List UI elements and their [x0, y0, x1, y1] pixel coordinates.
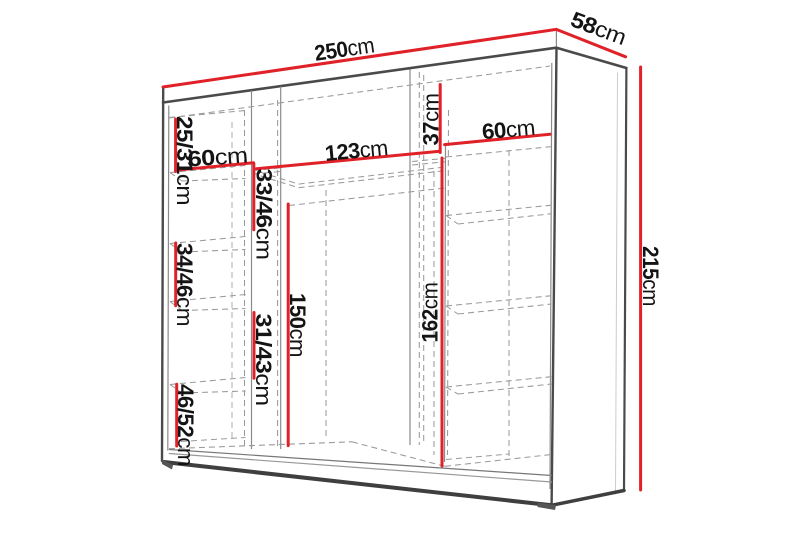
svg-text:46/52cm: 46/52cm: [173, 384, 198, 466]
svg-text:37cm: 37cm: [419, 94, 444, 146]
svg-text:162cm: 162cm: [418, 283, 443, 343]
svg-text:215cm: 215cm: [638, 246, 663, 306]
svg-text:60cm: 60cm: [187, 142, 249, 171]
svg-text:60cm: 60cm: [481, 115, 536, 145]
svg-text:33/46cm: 33/46cm: [252, 169, 277, 260]
svg-text:34/46cm: 34/46cm: [172, 243, 197, 326]
svg-text:31/43cm: 31/43cm: [251, 314, 276, 406]
svg-text:150cm: 150cm: [285, 293, 310, 357]
